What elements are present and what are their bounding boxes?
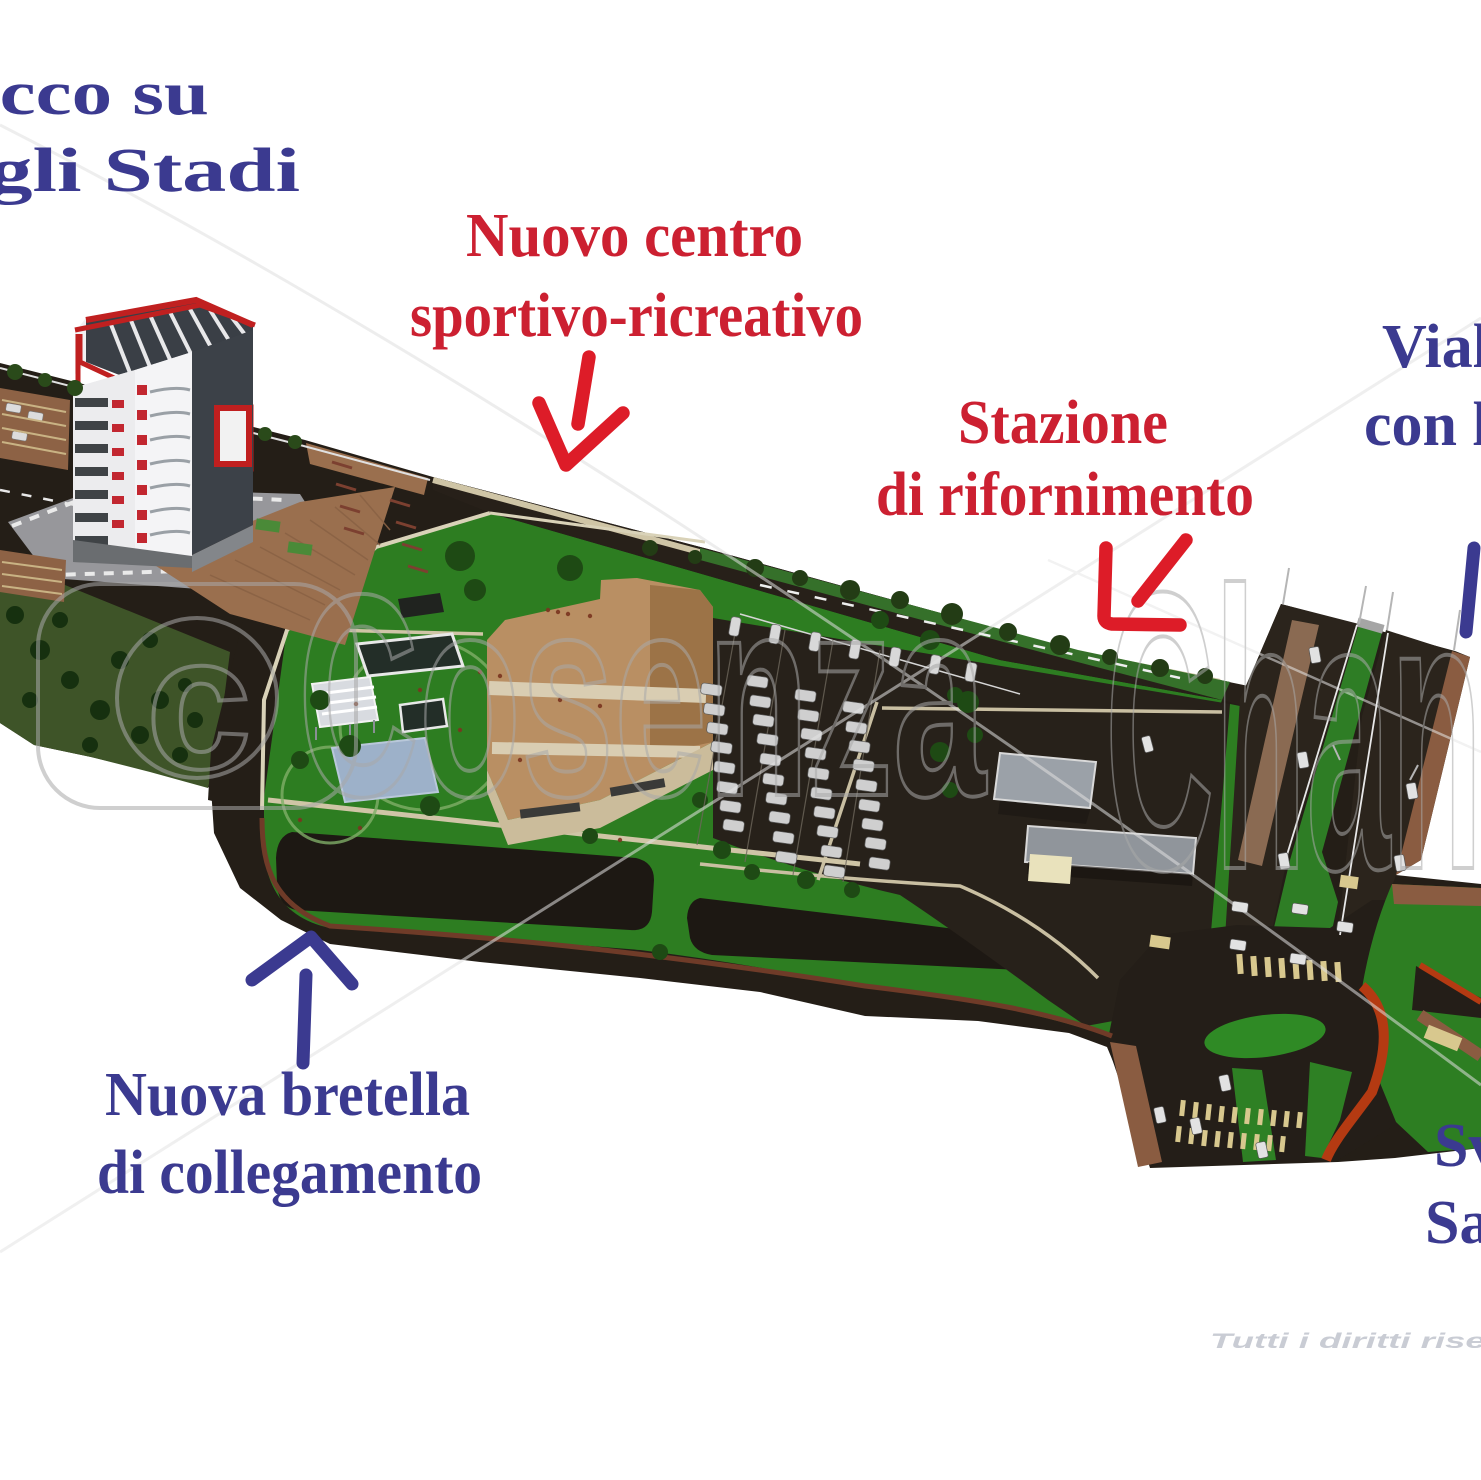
svg-text:Tutti i diritti riser: Tutti i diritti riser — [1210, 1330, 1481, 1353]
svg-text:Nuovo centro: Nuovo centro — [466, 202, 803, 270]
svg-text:sportivo-ricreativo: sportivo-ricreativo — [410, 282, 863, 350]
svg-text:con le: con le — [1364, 391, 1481, 459]
svg-text:Cosenza: Cosenza — [298, 535, 987, 857]
svg-text:Salerno: Salerno — [1425, 1189, 1481, 1257]
svg-text:Viale: Viale — [1382, 313, 1481, 381]
svg-text:Svincolo: Svincolo — [1434, 1112, 1481, 1180]
svg-text:degli Stadi: degli Stadi — [0, 137, 300, 205]
svg-text:Nuova bretella: Nuova bretella — [105, 1061, 470, 1129]
svg-text:di rifornimento: di rifornimento — [876, 461, 1254, 529]
svg-text:c: c — [146, 597, 252, 809]
svg-text:Sbocco su: Sbocco su — [0, 60, 209, 128]
svg-text:Stazione: Stazione — [958, 389, 1168, 457]
svg-text:di collegamento: di collegamento — [97, 1139, 482, 1207]
